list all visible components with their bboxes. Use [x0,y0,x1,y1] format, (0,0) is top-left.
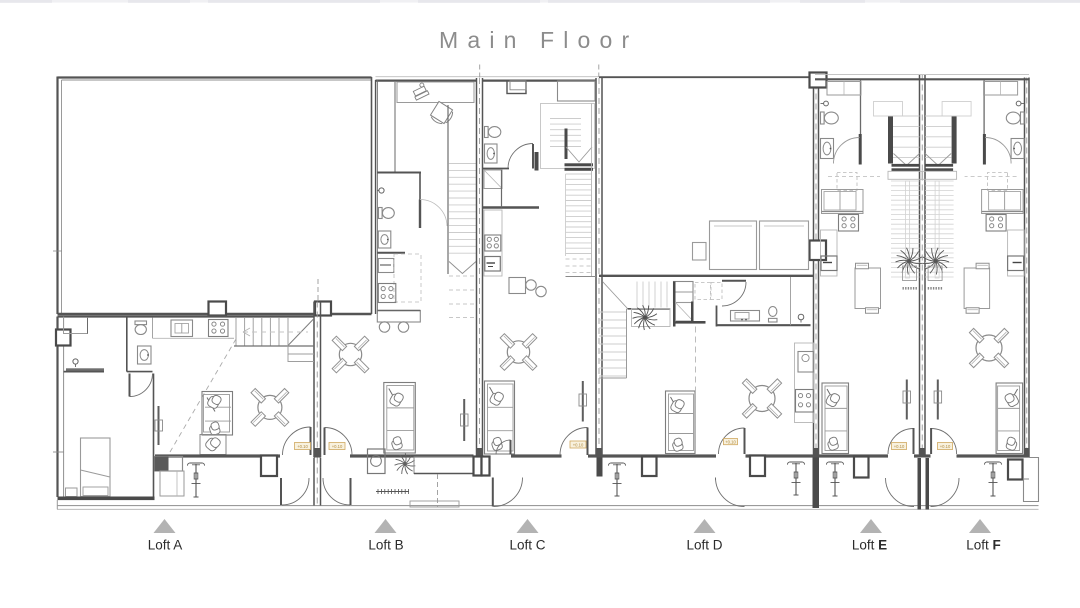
svg-text:Loft B: Loft B [368,538,403,553]
svg-text:Loft A: Loft A [148,538,183,553]
svg-text:+0.10: +0.10 [725,439,736,444]
svg-text:Floor: Floor [540,27,638,53]
svg-text:+0.10: +0.10 [297,444,308,449]
svg-text:Loft D: Loft D [686,538,722,553]
svg-text:+0.10: +0.10 [573,443,584,448]
svg-text:Main: Main [439,27,526,53]
svg-text:Loft E: Loft E [852,538,887,553]
svg-text:Loft F: Loft F [966,538,1001,553]
svg-text:+0.10: +0.10 [940,444,951,449]
svg-text:Loft C: Loft C [509,538,545,553]
svg-text:+0.10: +0.10 [332,444,343,449]
svg-text:+0.10: +0.10 [894,444,905,449]
